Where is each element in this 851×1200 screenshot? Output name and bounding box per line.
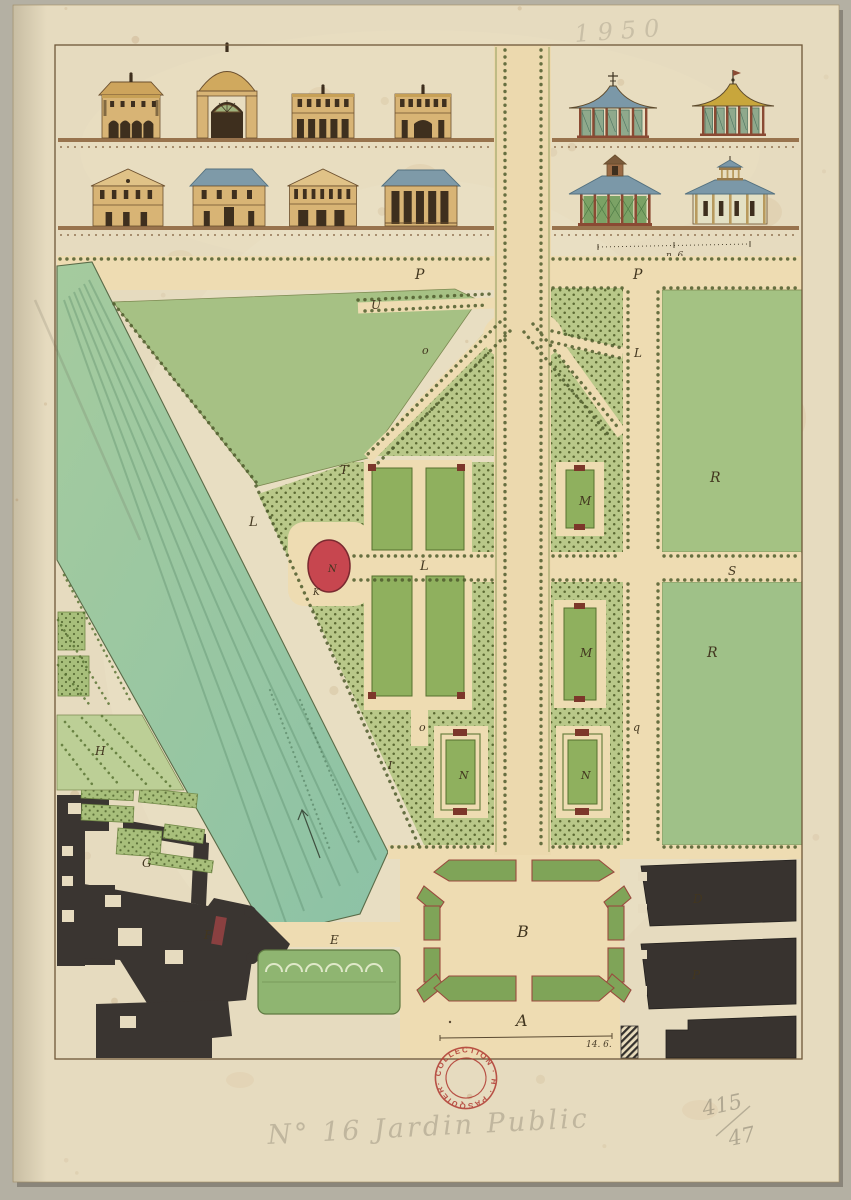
ground-line-row1-left <box>58 138 494 142</box>
plan-letter-N: N <box>327 564 338 575</box>
foxing-spot <box>617 79 624 86</box>
plan-letter-M: M <box>578 494 592 508</box>
foxing-spot <box>813 834 820 841</box>
tall-colonnade-house <box>382 170 460 226</box>
paper-tone <box>80 30 760 270</box>
foxing-spot <box>824 75 829 80</box>
round-turret <box>246 952 258 964</box>
lawn-upper-right <box>662 290 802 552</box>
plan-letter-I: I <box>387 759 393 772</box>
chateau-south-block <box>96 1000 232 1058</box>
hedge-piece <box>424 906 440 940</box>
ground-line-row1-right <box>552 138 799 142</box>
foxing-spot <box>64 1158 69 1163</box>
foxing-spot <box>161 293 166 298</box>
hedge-piece <box>532 860 614 881</box>
plan-letter-H: H <box>94 744 106 758</box>
plan-letter-A: A <box>514 1011 528 1030</box>
plan-letter-P: P <box>414 267 425 283</box>
hedge-piece <box>434 860 516 881</box>
plan-letter-R: R <box>706 645 718 661</box>
foxing-spot <box>518 6 522 10</box>
plan-letter-B: B <box>516 922 529 941</box>
plan-letter-M: M <box>579 646 593 660</box>
foxing-spot <box>465 340 468 343</box>
foxing-spot <box>75 1171 79 1175</box>
foxing-spot <box>536 1075 545 1084</box>
foxing-spot <box>602 1144 606 1148</box>
parterre-bed <box>372 468 412 550</box>
plan-letter-o: o <box>422 344 429 357</box>
plan-letter-P: P <box>632 267 643 283</box>
foxing-spot <box>329 686 338 695</box>
plan-letter-U: U <box>371 298 382 312</box>
plan-letter-L: L <box>248 515 258 530</box>
plan-letter-o: o <box>419 721 426 734</box>
scanned-drawing: n. 6. <box>0 0 851 1200</box>
p-road <box>57 256 802 290</box>
plan-letter-N: N <box>580 769 591 782</box>
plan-letter-L: L <box>633 346 642 360</box>
parterre-bed <box>372 576 412 696</box>
black-building-d <box>641 860 796 926</box>
plan-letter-L: L <box>419 559 429 574</box>
plan-letter-S: S <box>728 564 736 578</box>
plan-letter-R: R <box>709 470 721 486</box>
plan-letter-N: N <box>458 769 469 782</box>
plan-letter-E: E <box>329 933 339 947</box>
foxing-spot <box>822 169 826 173</box>
garden-plot <box>81 804 134 823</box>
chateau-g-east-wing <box>191 840 209 906</box>
plan-letter-K: K <box>312 588 321 598</box>
basin-e <box>258 950 400 1014</box>
plan-letter-T: T <box>340 463 349 477</box>
lawn-lower-right <box>662 582 802 845</box>
stair-hatch <box>621 1026 638 1058</box>
plan-letter-q: q <box>633 721 640 734</box>
ground-line-row2-right <box>552 226 799 230</box>
foxing-spot <box>381 97 389 105</box>
parterre-bed <box>426 468 464 550</box>
plan-letter-G: G <box>142 856 152 870</box>
parterre-bed <box>426 576 464 696</box>
plan-letter-F: F <box>203 928 213 942</box>
path-q <box>623 288 662 845</box>
foxing-spot <box>132 36 140 44</box>
hedge-piece <box>608 906 624 940</box>
round-turret <box>244 906 256 918</box>
foxing-spot <box>16 499 19 502</box>
plan-letter-P: P <box>691 968 701 982</box>
hipped-roof-house <box>190 169 268 226</box>
foxing-spot <box>64 7 67 10</box>
foxing-spot <box>44 402 47 405</box>
ground-line-row2-left <box>58 226 494 230</box>
garden-plan-artwork: n. 6. <box>0 0 851 1200</box>
black-building-p <box>641 938 796 1009</box>
bottom-scale-label: 14. 6. <box>586 1040 612 1050</box>
plan-letter-D: D <box>692 892 703 906</box>
paper-fold-shading <box>13 5 47 1182</box>
garden-plot <box>58 612 85 650</box>
hedge-piece <box>532 976 614 1001</box>
hedge-piece <box>434 976 516 1001</box>
